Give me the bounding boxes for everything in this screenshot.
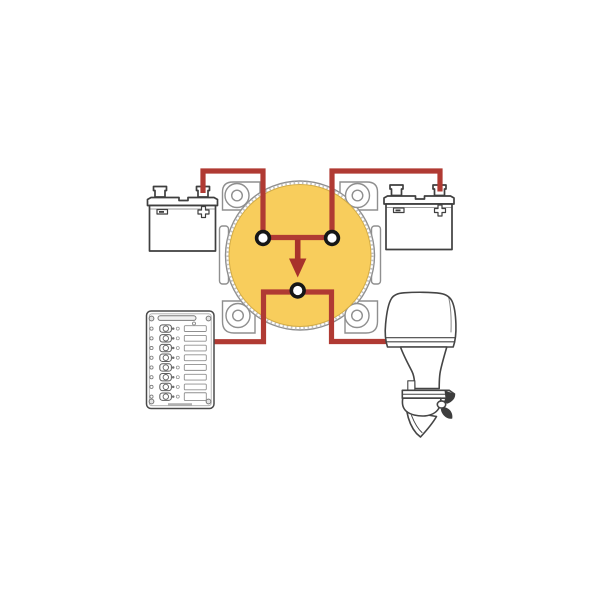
row-dot-icon (172, 327, 175, 330)
panel-screw-icon (206, 316, 211, 321)
row-dot-icon (172, 395, 175, 398)
panel-screw-icon (206, 399, 211, 404)
row-label-slot (184, 365, 206, 371)
breaker-toggle-knob-icon (163, 375, 168, 380)
motor-cowling (385, 292, 456, 347)
panel-brand-print (168, 403, 192, 405)
outboard-motor (385, 292, 456, 437)
battery-left (148, 187, 218, 252)
row-led-icon (176, 385, 179, 388)
row-dot-icon (172, 337, 175, 340)
row-led-icon (176, 395, 179, 398)
row-led-icon (176, 356, 179, 359)
terminal-bottom-center (293, 286, 302, 295)
panel-row-screw-dot (150, 346, 153, 349)
row-led-icon (176, 337, 179, 340)
row-label-slot (184, 335, 206, 341)
row-label-slot (184, 326, 206, 332)
breaker-toggle-knob-icon (163, 355, 168, 360)
row-label-slot (184, 355, 206, 361)
battery-lid (148, 198, 218, 206)
terminal-left-center (258, 233, 267, 242)
row-label-slot (184, 374, 206, 380)
breaker-toggle-knob-icon (163, 394, 168, 399)
row-dot-icon (172, 366, 175, 369)
breaker-panel (147, 311, 215, 409)
row-label-slot (184, 393, 206, 401)
row-led-icon (176, 347, 179, 350)
breaker-toggle-knob-icon (163, 384, 168, 389)
breaker-toggle-knob-icon (163, 336, 168, 341)
row-label-slot (184, 345, 206, 351)
battery-post-icon (154, 187, 167, 198)
row-led-icon (176, 366, 179, 369)
terminal-right-center (327, 233, 336, 242)
panel-row-screw-dot (150, 366, 153, 369)
panel-row-screw-dot (150, 385, 153, 388)
minus-dash-icon (159, 211, 164, 213)
row-dot-icon (172, 386, 175, 389)
row-led-icon (176, 327, 179, 330)
row-led-icon (176, 376, 179, 379)
breaker-toggle-knob-icon (163, 365, 168, 370)
battery-post-icon (390, 185, 403, 196)
wiring-diagram-svg (0, 0, 600, 600)
propeller-blade-icon (441, 407, 453, 419)
row-dot-icon (172, 376, 175, 379)
panel-row-screw-dot (150, 376, 153, 379)
minus-dash-icon (396, 210, 401, 212)
breaker-toggle-knob-icon (163, 345, 168, 350)
panel-row-screw-dot (150, 337, 153, 340)
battery-lid (384, 196, 454, 204)
diagram-canvas (0, 0, 600, 600)
propeller-hub (437, 401, 445, 408)
panel-row-screw-dot (150, 395, 153, 398)
panel-row-screw-dot (150, 327, 153, 330)
row-label-slot (184, 384, 206, 390)
battery-right (384, 185, 454, 250)
panel-screw-icon (149, 316, 154, 321)
panel-screw-icon (149, 399, 154, 404)
mount-hole-icon (233, 310, 244, 321)
panel-top-slot (158, 316, 196, 321)
row-dot-icon (172, 357, 175, 360)
mount-hole-icon (232, 190, 243, 201)
panel-led-icon (193, 322, 196, 325)
breaker-toggle-knob-icon (163, 326, 168, 331)
motor-clamp-bracket (408, 381, 415, 390)
row-dot-icon (172, 347, 175, 350)
motor-gearcase (402, 398, 440, 416)
mount-hole-icon (352, 310, 363, 321)
panel-row-screw-dot (150, 356, 153, 359)
mount-hole-icon (352, 190, 363, 201)
